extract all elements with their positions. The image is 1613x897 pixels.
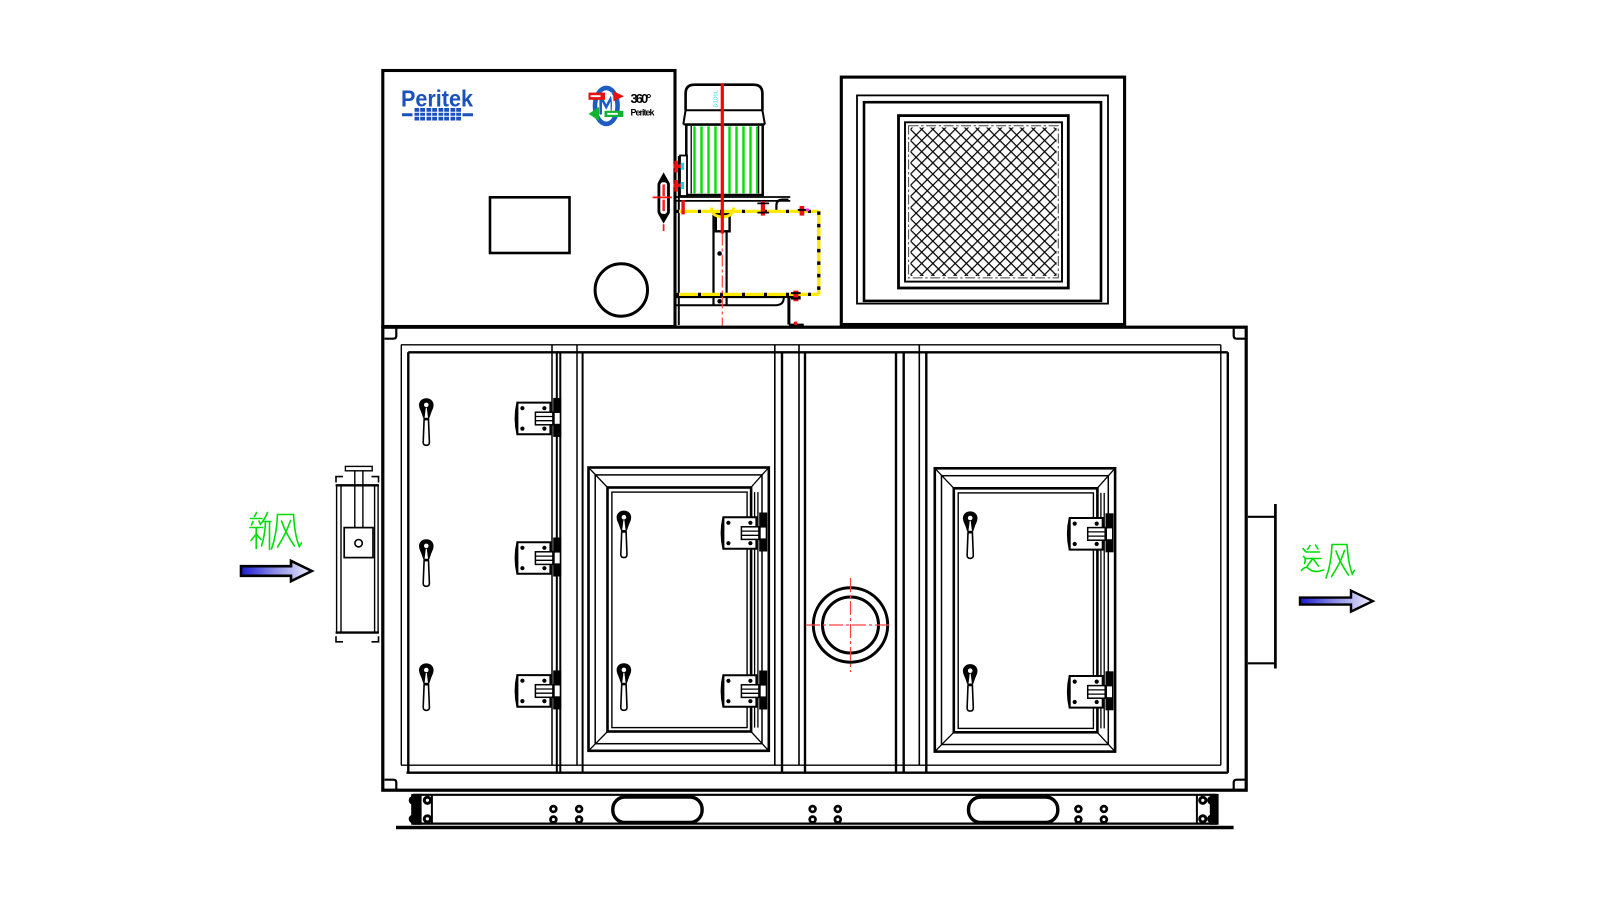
svg-text:D100L: D100L <box>714 90 720 108</box>
svg-text:Peritek: Peritek <box>631 108 656 118</box>
svg-text:360°: 360° <box>631 91 652 106</box>
svg-text:Peritek: Peritek <box>401 86 473 112</box>
